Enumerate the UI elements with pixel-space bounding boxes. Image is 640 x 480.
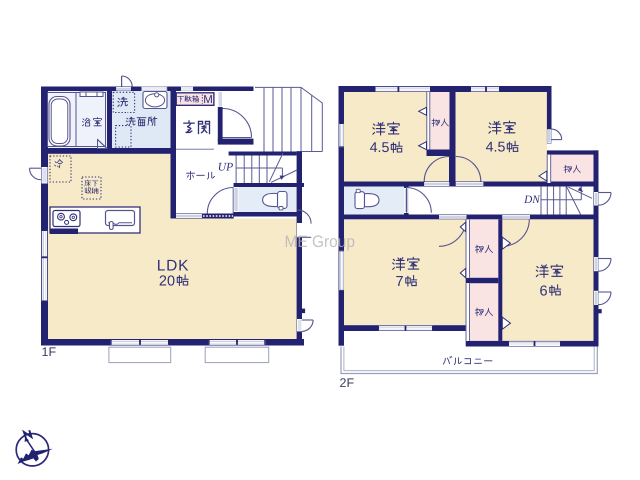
svg-text:2F: 2F — [340, 376, 355, 390]
svg-text:M: M — [203, 94, 213, 106]
svg-text:1F: 1F — [42, 345, 57, 359]
svg-text:6: 6 — [539, 283, 547, 299]
svg-text:7: 7 — [395, 274, 403, 290]
svg-text:ME Group: ME Group — [285, 232, 356, 251]
svg-text:UP: UP — [218, 160, 233, 173]
svg-text:4.5: 4.5 — [486, 139, 506, 155]
svg-text:DN: DN — [523, 194, 541, 206]
svg-text:20: 20 — [159, 273, 175, 289]
svg-text:LDK: LDK — [157, 257, 190, 274]
svg-text:4.5: 4.5 — [370, 140, 390, 156]
